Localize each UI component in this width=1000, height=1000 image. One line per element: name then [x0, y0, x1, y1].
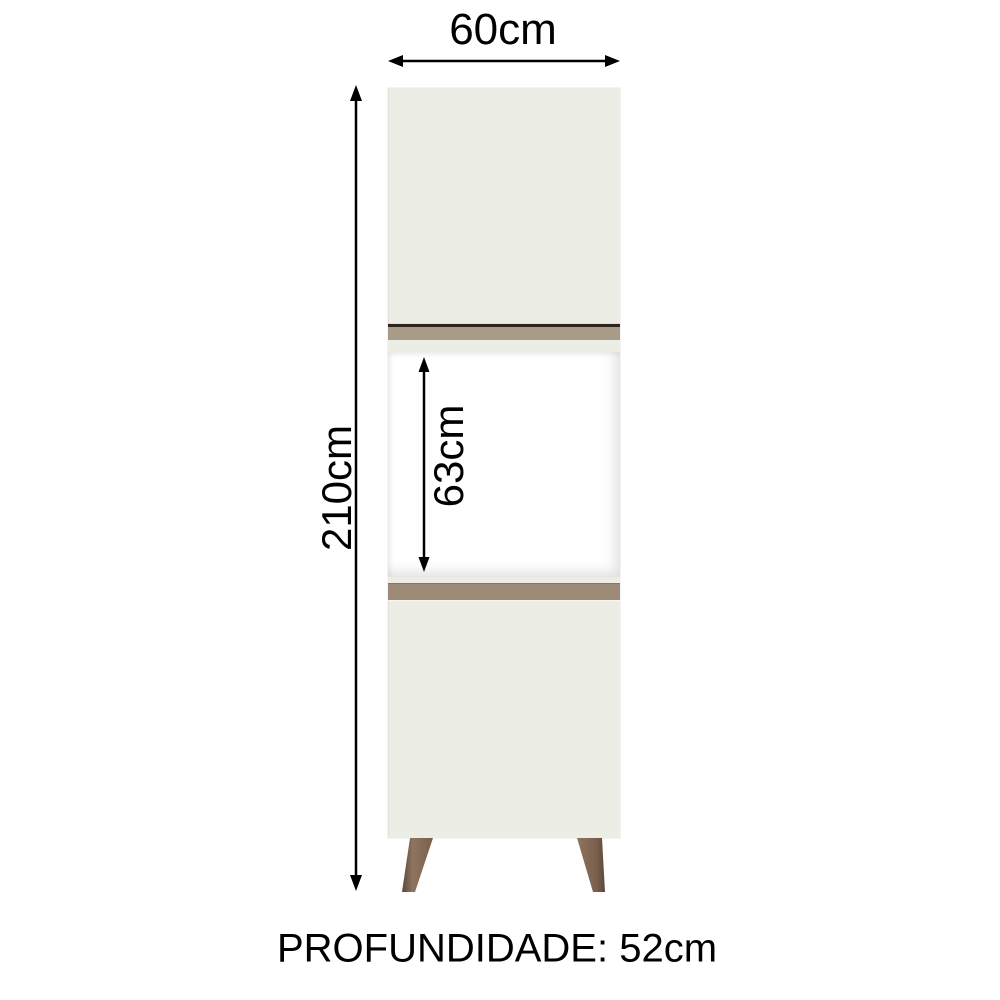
left-leg — [402, 838, 433, 892]
width-dimension-arrow — [388, 55, 620, 67]
cabinet-top-door — [388, 88, 620, 324]
depth-label: PROFUNDIDADE: 52cm — [277, 927, 717, 972]
cabinet-legs — [388, 838, 620, 892]
cabinet-bottom-door — [388, 600, 620, 838]
right-leg — [577, 838, 605, 892]
cabinet-body — [388, 88, 620, 838]
height-dimension-label: 210cm — [316, 425, 358, 551]
wood-strip-bottom — [388, 583, 620, 600]
opening-dimension-label: 63cm — [428, 405, 470, 508]
oven-opening — [388, 352, 620, 577]
width-dimension-label: 60cm — [449, 8, 557, 52]
product-diagram: 60cm 210cm 63cm PROFUNDIDADE: 52cm — [0, 0, 1000, 1000]
wood-strip-top — [388, 327, 620, 340]
